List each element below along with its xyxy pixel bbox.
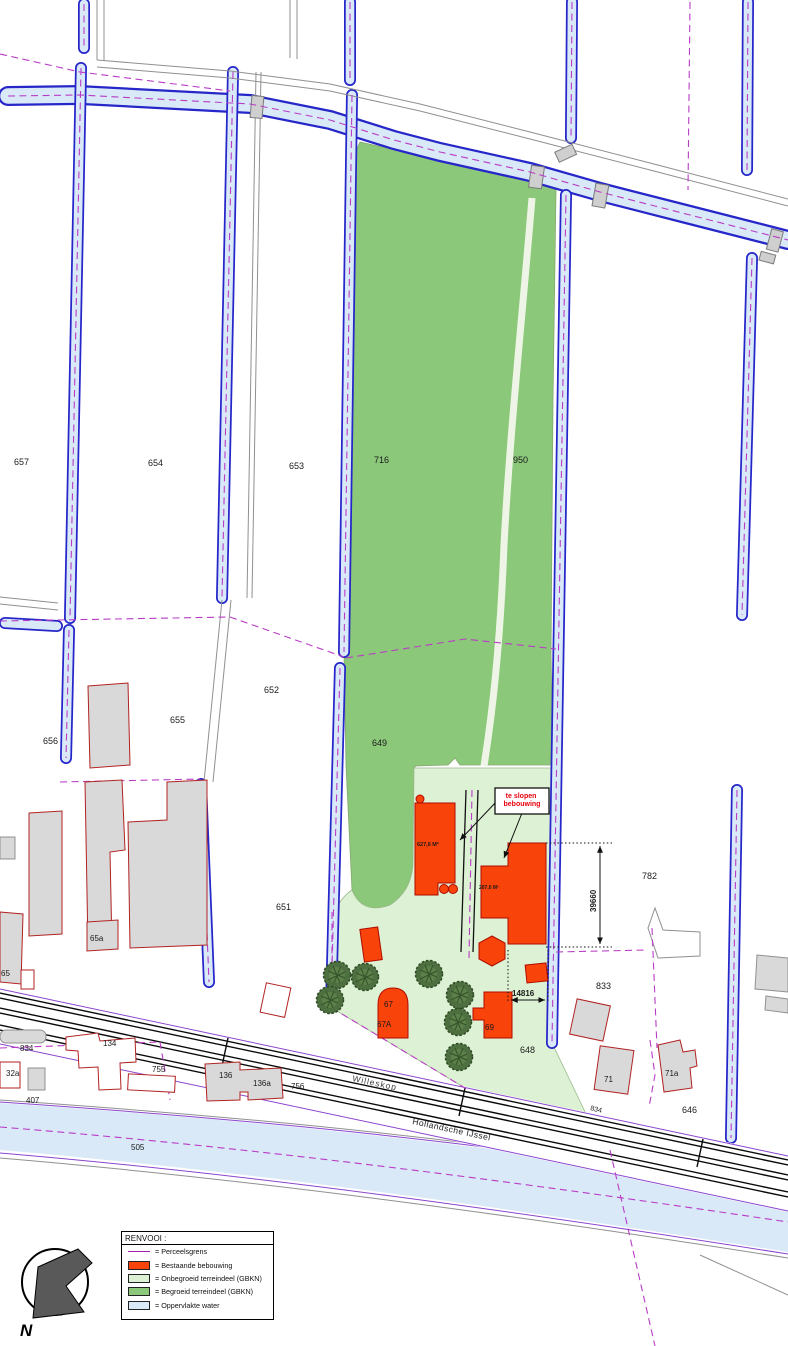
label-652: 652	[264, 685, 279, 695]
legend-item-water: = Oppervlakte water	[122, 1299, 273, 1312]
label-834: 834	[590, 1105, 603, 1115]
north-label: N	[20, 1321, 33, 1340]
label-834: 834	[20, 1044, 34, 1053]
parcel-line-symbol	[128, 1251, 150, 1252]
label-65: 65	[1, 969, 10, 978]
tree-icon	[324, 962, 351, 989]
label-71: 71	[604, 1075, 613, 1084]
demolish-label: te slopen bebouwing	[504, 793, 541, 808]
label-756: 756	[291, 1082, 305, 1091]
label-648: 648	[520, 1045, 535, 1055]
label-651: 651	[276, 902, 291, 912]
label-716: 716	[374, 455, 389, 465]
legend-item-onbegroeid: = Onbegroeid terreindeel (GBKN)	[122, 1272, 273, 1285]
label-136a: 136a	[253, 1079, 271, 1088]
label-67a: 67A	[377, 1020, 392, 1029]
label-833: 833	[596, 981, 611, 991]
water-swatch	[128, 1301, 150, 1310]
legend-item-begroeid: = Begroeid terreindeel (GBKN)	[122, 1285, 273, 1298]
building-hexagon	[479, 936, 505, 966]
tree-icon	[317, 987, 344, 1014]
building-67	[378, 988, 408, 1038]
label-71a: 71a	[665, 1069, 679, 1078]
label-67: 67	[384, 1000, 393, 1009]
building-627m2	[415, 803, 455, 895]
label-627-6-m-: 627,6 M²	[417, 841, 439, 848]
label-207-6-m-: 207,6 M²	[479, 885, 499, 891]
tree-icon	[416, 961, 443, 988]
label-407: 407	[26, 1096, 40, 1105]
map-canvas: te slopen bebouwing N 657654653716950652…	[0, 0, 788, 1346]
tree-icon	[445, 1009, 472, 1036]
label-755: 755	[152, 1065, 166, 1074]
tree-icon	[446, 1044, 473, 1071]
label-656: 656	[43, 736, 58, 746]
legend-title: RENVOOI :	[122, 1232, 273, 1245]
label-69: 69	[485, 1023, 494, 1032]
label-505: 505	[131, 1143, 145, 1152]
tree-icon	[352, 964, 379, 991]
vegetated-swatch	[128, 1287, 150, 1296]
label-134: 134	[103, 1039, 117, 1048]
label-782: 782	[642, 871, 657, 881]
label-136: 136	[219, 1071, 233, 1080]
tree-icon	[447, 982, 474, 1009]
label-649: 649	[372, 738, 387, 748]
label-646: 646	[682, 1105, 697, 1115]
open-terrain-swatch	[128, 1274, 150, 1283]
label-950: 950	[513, 455, 528, 465]
north-compass: N	[20, 1249, 92, 1340]
label-654: 654	[148, 458, 163, 468]
legend-item-perceelsgrens: = Perceelsgrens	[122, 1245, 273, 1258]
label-657: 657	[14, 457, 29, 467]
label-65a: 65a	[90, 934, 104, 943]
label-14816: 14816	[512, 989, 535, 998]
label-32a: 32a	[6, 1069, 20, 1078]
label-655: 655	[170, 715, 185, 725]
cadastral-map-page: te slopen bebouwing N 657654653716950652…	[0, 0, 788, 1346]
label-39660: 39660	[589, 889, 598, 912]
legend: RENVOOI : = Perceelsgrens = Bestaande be…	[121, 1231, 274, 1320]
label-653: 653	[289, 461, 304, 471]
legend-item-bestaande-bebouwing: = Bestaande bebouwing	[122, 1258, 273, 1271]
building-swatch	[128, 1261, 150, 1270]
